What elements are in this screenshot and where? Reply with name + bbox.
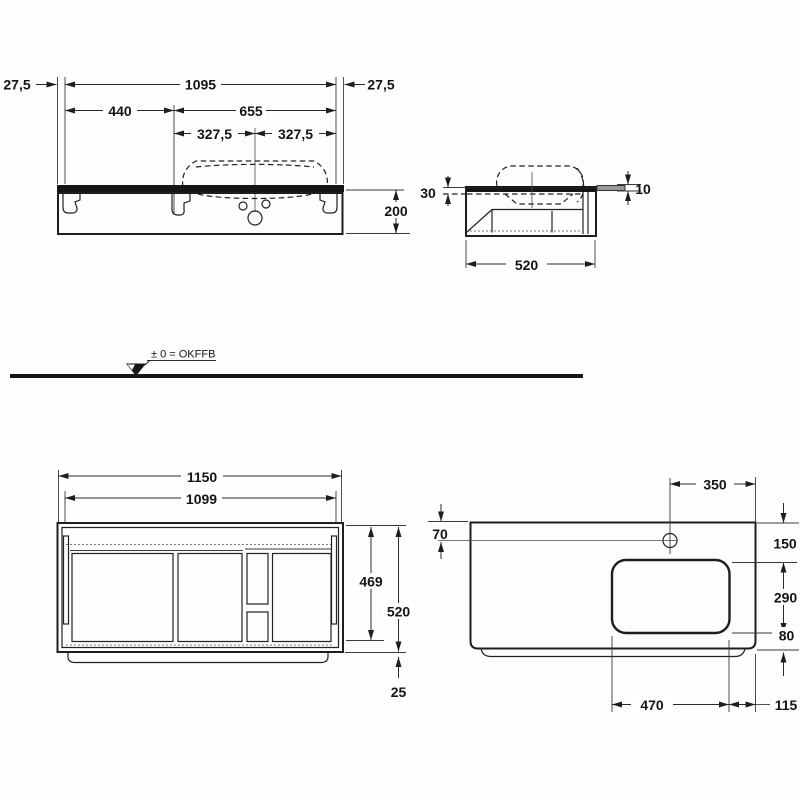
front-view-top: 27,5 1095 27,5 440 655 327,5 327,5 200 <box>3 77 412 235</box>
dim-cabinet-body-width: 1099 <box>186 491 217 507</box>
drain-holes <box>239 200 270 225</box>
dim-towel-rail-diameter: 10 <box>635 181 651 197</box>
dimension-lines <box>59 470 407 678</box>
drawer-panel <box>178 554 242 642</box>
cabinet-box-inner <box>62 528 339 648</box>
worktop-front-edge <box>481 649 745 657</box>
dim-countertop-thickness: 30 <box>420 185 436 201</box>
front-view-bottom: 1150 1099 469 520 25 <box>58 469 415 700</box>
apron-panel <box>58 193 343 234</box>
dim-cabinet-width: 1095 <box>185 77 216 93</box>
basin-cutout <box>612 560 730 633</box>
ground-level: ± 0 = OKFFB <box>10 349 583 379</box>
dim-depth: 520 <box>515 257 539 273</box>
ground-line <box>10 374 583 378</box>
drawer-panel <box>72 554 173 642</box>
dim-cutout-depth: 290 <box>774 590 798 606</box>
towel-rail <box>597 186 625 191</box>
dim-cutout-width: 470 <box>640 697 664 713</box>
dimension-lines <box>36 77 410 234</box>
cabinet-side-interior <box>467 172 588 234</box>
side-view-top: 30 10 520 <box>420 166 651 273</box>
drawer-panel <box>273 554 332 642</box>
washbasin-outline-dashed-side <box>467 166 584 204</box>
dim-edge-to-cutout: 150 <box>773 536 797 552</box>
dim-right-margin: 115 <box>775 697 798 713</box>
dim-basin-half-right: 327,5 <box>278 126 313 142</box>
dim-drawer-front-height: 469 <box>359 574 383 590</box>
dim-countertop-width: 1150 <box>187 469 218 485</box>
plan-view: 350 70 150 290 80 470 115 <box>428 477 800 714</box>
cabinet-interior <box>64 536 337 645</box>
drawer-panel <box>247 554 268 605</box>
vanity-unit-technical-drawing: 27,5 1095 27,5 440 655 327,5 327,5 200 <box>0 0 800 800</box>
dim-right-overhang: 27,5 <box>367 77 394 93</box>
dim-left-section: 440 <box>108 103 132 119</box>
dim-apron-height: 200 <box>384 203 408 219</box>
dim-left-overhang: 27,5 <box>3 77 30 93</box>
dim-total-height: 520 <box>387 604 411 620</box>
dim-basin-span: 655 <box>239 103 263 119</box>
drawer-panel <box>247 612 268 642</box>
cabinet-side-body <box>466 188 596 236</box>
dim-basin-half-left: 327,5 <box>197 126 232 142</box>
level-label: ± 0 = OKFFB <box>151 349 215 361</box>
dim-tap-from-back: 70 <box>432 526 448 542</box>
technical-drawing-page: 27,5 1095 27,5 440 655 327,5 327,5 200 <box>0 0 800 800</box>
dim-tap-from-right: 350 <box>703 477 727 493</box>
plinth <box>68 653 328 663</box>
dim-plinth-height: 25 <box>391 684 407 700</box>
dim-front-margin: 80 <box>779 628 795 644</box>
mounting-brackets <box>63 194 337 215</box>
dimension-lines <box>428 477 799 712</box>
countertop-slab <box>57 185 344 192</box>
cabinet-box <box>58 523 344 652</box>
